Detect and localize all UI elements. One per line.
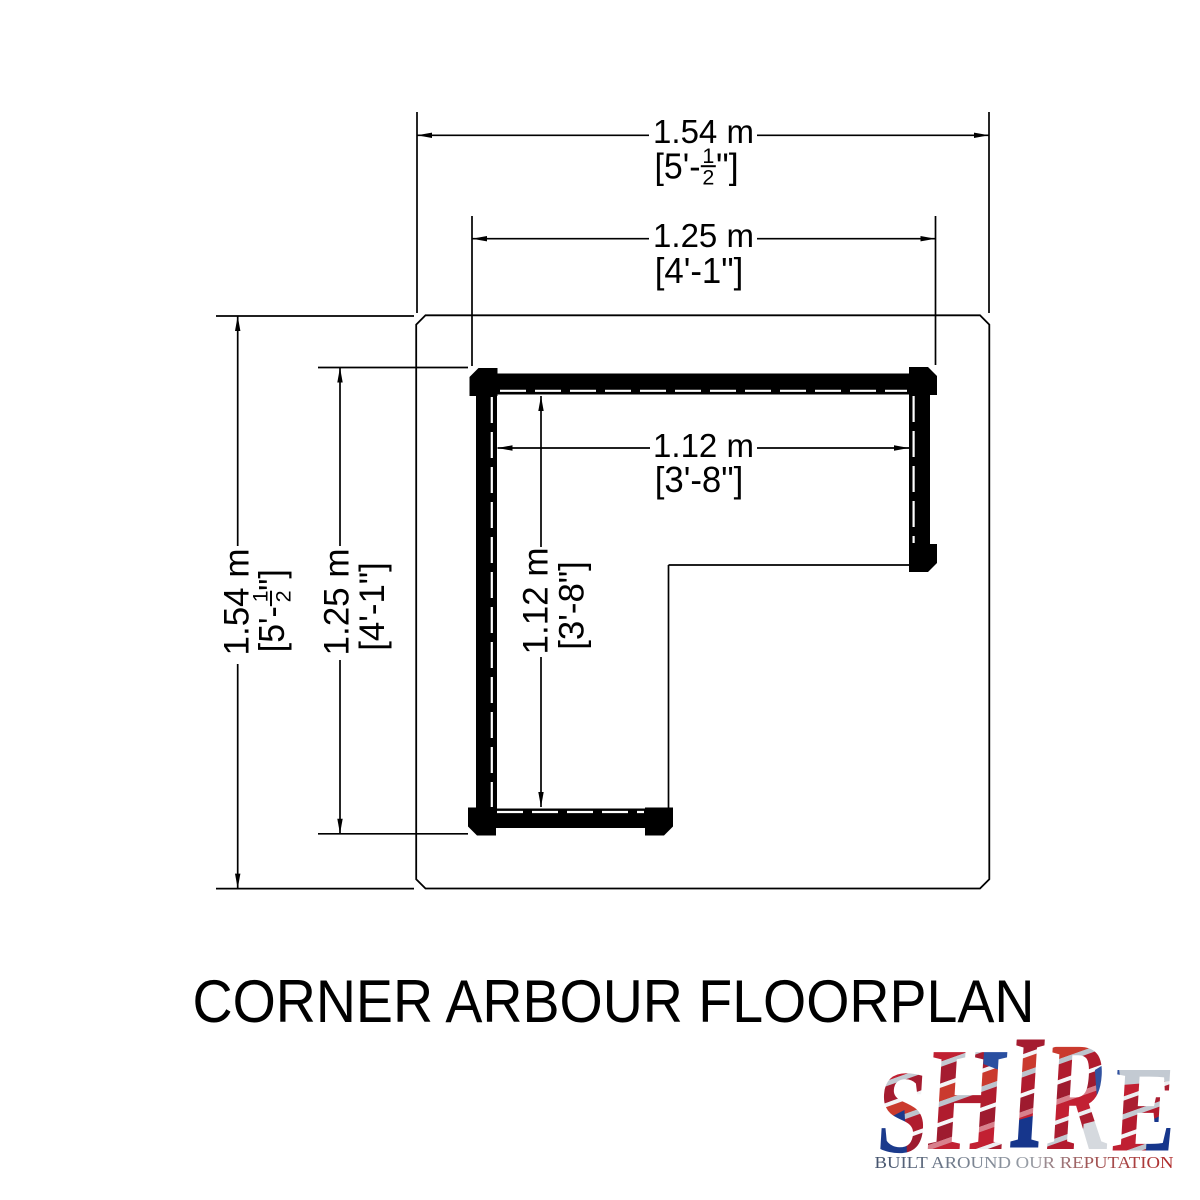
- svg-text:[5'-: [5'-: [251, 606, 292, 652]
- svg-text:1.25 m: 1.25 m: [318, 549, 357, 656]
- svg-text:"]: "]: [251, 569, 292, 591]
- svg-text:[4'-1"]: [4'-1"]: [655, 250, 744, 291]
- svg-text:"]: "]: [716, 146, 739, 187]
- svg-text:2: 2: [271, 590, 295, 602]
- svg-text:[5'-: [5'-: [655, 146, 701, 187]
- svg-text:1.25 m: 1.25 m: [653, 217, 754, 254]
- svg-text:[3'-8"]: [3'-8"]: [553, 561, 592, 650]
- svg-text:CORNER ARBOUR FLOORPLAN: CORNER ARBOUR FLOORPLAN: [193, 967, 1035, 1035]
- svg-text:BUILT AROUND OUR REPUTATION: BUILT AROUND OUR REPUTATION: [875, 1153, 1174, 1172]
- svg-text:[3'-8"]: [3'-8"]: [655, 459, 744, 500]
- svg-text:[4'-1"]: [4'-1"]: [353, 562, 392, 651]
- svg-text:1.12 m: 1.12 m: [517, 548, 556, 655]
- svg-text:1: 1: [702, 144, 714, 168]
- svg-text:1: 1: [249, 590, 273, 602]
- svg-text:2: 2: [702, 166, 714, 190]
